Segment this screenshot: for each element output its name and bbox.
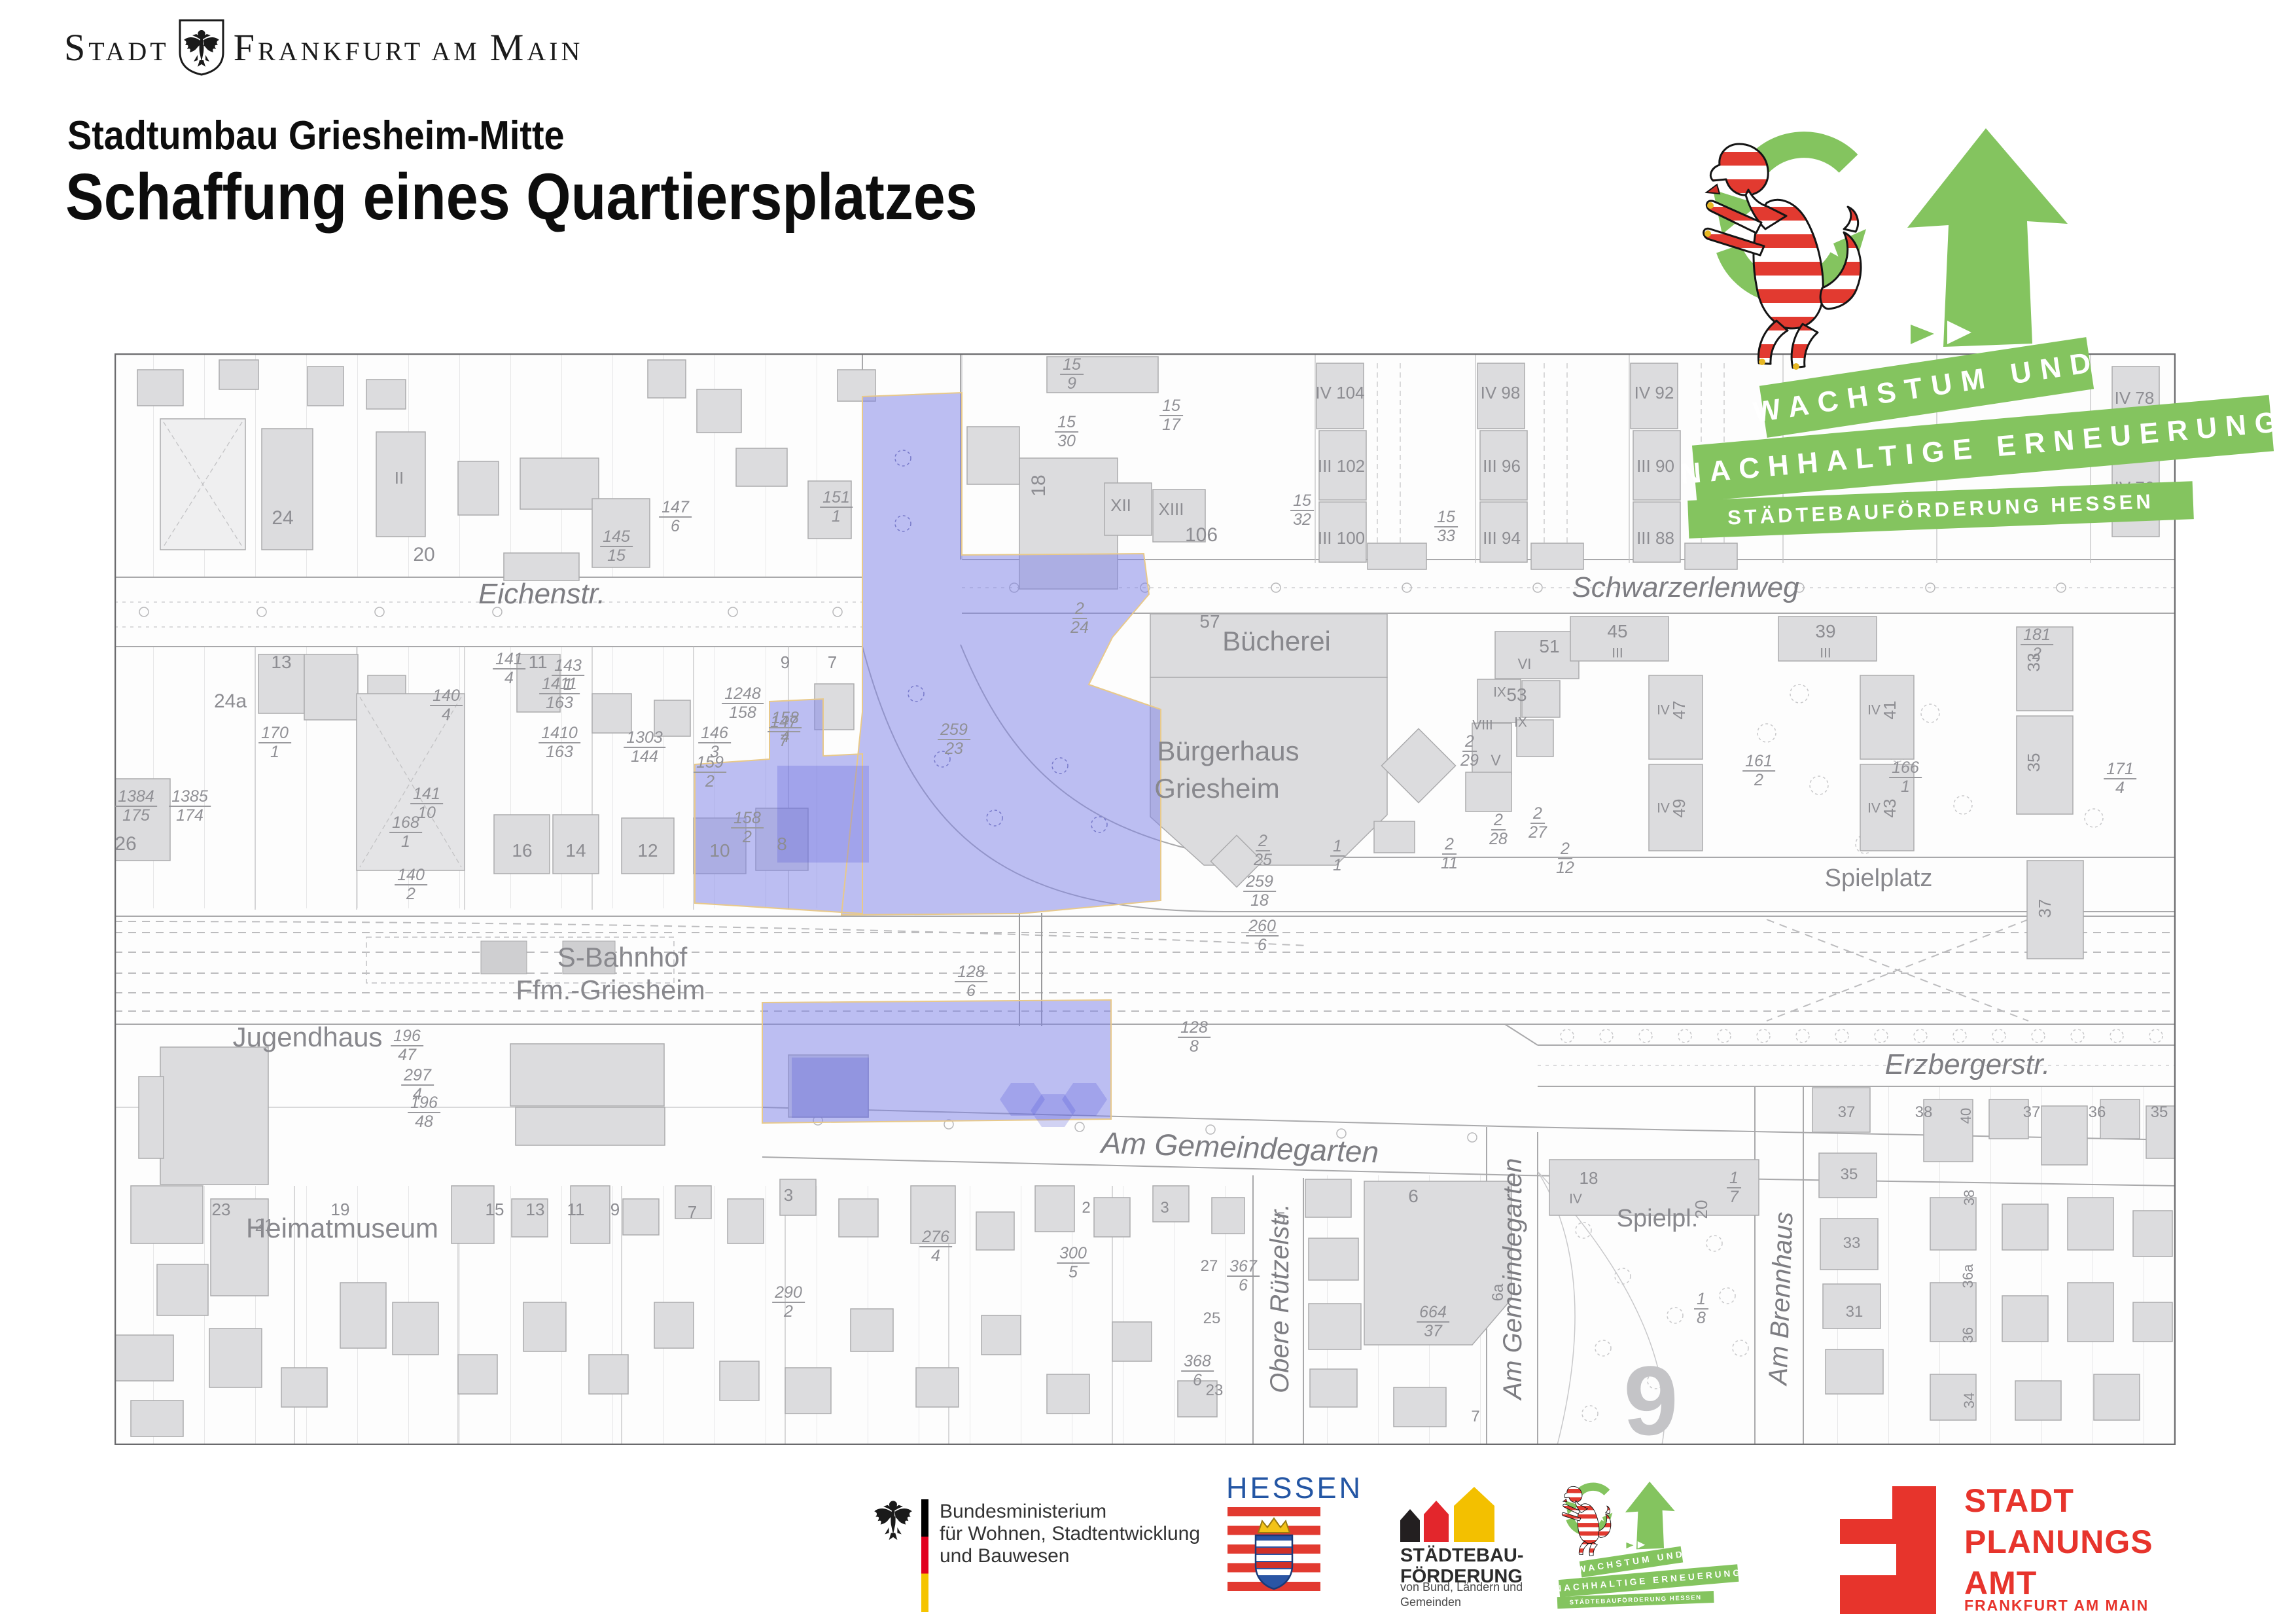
map-label: 53: [1506, 686, 1527, 704]
staedtebaufoerderung-logo-subtext: von Bund, Ländern und Gemeinden: [1400, 1580, 1523, 1611]
map-label: Bücherei: [1222, 628, 1331, 655]
stadtplanungsamt-mark-icon: [1840, 1486, 1936, 1614]
map-label: 49: [1670, 799, 1687, 818]
map-label: 1303144: [624, 730, 665, 765]
map-label: 159: [1060, 357, 1084, 392]
germany-flag-stripe: [921, 1499, 928, 1612]
bmwsb-logo-text: Bundesministerium für Wohnen, Stadtentwi…: [940, 1501, 1200, 1568]
map-label: 229: [1460, 734, 1479, 769]
map-label: Ffm.-Griesheim: [516, 976, 705, 1004]
map-label: 14515: [600, 529, 633, 564]
plan-page: STADT FRANKFURT AM MAIN Stadtumbau Gries…: [0, 0, 2296, 1623]
map-label: 14: [565, 842, 586, 860]
map-label: III 100: [1318, 529, 1365, 546]
map-label: 31: [1846, 1304, 1863, 1320]
map-label: 18: [1029, 474, 1049, 496]
map-label: 1414: [493, 651, 525, 687]
map-label: 12: [637, 842, 658, 860]
wordmark-part: M: [490, 26, 527, 69]
map-label: VIII: [1472, 719, 1493, 732]
city-logo: STADT FRANKFURT AM MAIN: [64, 18, 583, 76]
map-label: 25918: [1243, 874, 1276, 909]
map-label: IV: [1657, 704, 1670, 717]
map-label: 1517: [1159, 398, 1183, 433]
map-label: 1511: [820, 490, 853, 525]
map-label: 26: [115, 834, 136, 854]
map-label: IV 98: [1481, 384, 1521, 401]
map-label: IV 92: [1634, 384, 1674, 401]
city-logo-wordmark-right: FRANKFURT AM MAIN: [234, 26, 584, 69]
map-label: Obere Rützelstr.: [1267, 1204, 1293, 1393]
map-label: 9: [1623, 1351, 1678, 1450]
wordmark-part: S: [64, 26, 88, 69]
map-label: 10: [709, 842, 730, 860]
map-label: 36: [1961, 1327, 1975, 1343]
map-label: 27: [1201, 1258, 1218, 1274]
map-label: 1582: [731, 810, 764, 846]
page-subtitle: Stadtumbau Griesheim-Mitte: [67, 113, 565, 159]
map-label: 7: [688, 1204, 697, 1221]
hessen-lion-icon: [1688, 124, 1865, 380]
map-label: 2902: [772, 1285, 805, 1320]
map-label: 1661: [1889, 760, 1922, 795]
map-label: 1812: [2021, 627, 2053, 662]
map-label: 25923: [938, 722, 970, 757]
map-label: 36: [2089, 1105, 2106, 1120]
map-label: Spielplatz: [1825, 866, 1933, 891]
map-label: IV: [1867, 802, 1881, 815]
map-label: 36a: [1961, 1264, 1975, 1289]
page-title: Schaffung eines Quartiersplatzes: [65, 160, 978, 235]
map-label: 1476: [659, 499, 692, 535]
map-label: 1384175: [115, 789, 157, 824]
map-label: 1530: [1055, 414, 1078, 450]
map-label: Griesheim: [1154, 775, 1279, 802]
map-label: 9: [781, 654, 790, 671]
map-label: 19647: [391, 1028, 423, 1063]
map-label: 1533: [1434, 509, 1458, 544]
map-label: 11: [567, 1201, 585, 1218]
map-label: V: [1491, 753, 1500, 768]
map-label: 24a: [214, 692, 247, 711]
map-label: 15: [486, 1201, 504, 1218]
wachstum-badge-small: WACHSTUM UND NACHHALTIGE ERNEUERUNG STÄD…: [1557, 1480, 1740, 1610]
map-label: 37: [2023, 1105, 2041, 1120]
map-label: Am Gemeindegarten: [1500, 1158, 1526, 1399]
map-label: 2: [1082, 1200, 1090, 1216]
map-label: 13: [526, 1201, 545, 1218]
map-label: Schwarzerlenweg: [1572, 573, 1799, 602]
map-label: III 88: [1636, 529, 1674, 546]
map-label: 18: [1694, 1291, 1708, 1327]
map-label: 1681: [389, 815, 422, 850]
map-label: 19: [331, 1201, 350, 1218]
map-label: IX: [1493, 686, 1506, 700]
map-label: IV: [1867, 704, 1881, 717]
map-label: 1612: [1742, 753, 1775, 789]
map-label: III: [1820, 647, 1831, 660]
map-label: III 102: [1318, 457, 1365, 474]
map-label: 37: [2036, 899, 2053, 918]
map-label: 35: [2025, 753, 2042, 772]
map-label: 34: [1962, 1393, 1977, 1408]
map-label: 1592: [694, 755, 726, 790]
map-label: 212: [1556, 841, 1574, 876]
map-label: Jugendhaus: [233, 1024, 383, 1051]
map-label: 9: [610, 1201, 620, 1218]
frankfurt-eagle-shield-icon: [177, 18, 226, 76]
map-label: 16: [512, 842, 532, 860]
map-label: 23: [212, 1201, 231, 1218]
map-label: 21: [255, 1217, 274, 1234]
map-label: IV 104: [1315, 384, 1364, 401]
map-label: XIII: [1158, 501, 1184, 518]
map-label: 1248158: [722, 686, 764, 721]
map-label: II: [395, 469, 404, 486]
map-label: Erzbergerstr.: [1885, 1050, 2051, 1079]
staedtebaufoerderung-houses-icon: [1400, 1487, 1498, 1542]
map-label: IV: [1657, 802, 1670, 815]
map-label: IX: [1514, 716, 1527, 730]
map-label: 6: [1408, 1187, 1419, 1205]
wordmark-part: TADT: [88, 37, 169, 66]
map-label: III 96: [1483, 457, 1521, 474]
map-label: 38: [1962, 1190, 1977, 1205]
map-label: 2764: [919, 1229, 952, 1264]
map-label: 47: [1670, 701, 1687, 720]
city-logo-wordmark-left: STADT: [64, 26, 169, 69]
map-label: 1385174: [169, 789, 211, 824]
map-label: Bürgerhaus: [1157, 738, 1299, 765]
map-label: Am Brennhaus: [1765, 1211, 1797, 1385]
map-label: 18: [1580, 1169, 1598, 1186]
map-label: 8: [777, 835, 787, 853]
map-label: 106: [1185, 526, 1218, 545]
map-label: Eichenstr.: [478, 580, 605, 609]
map-label: III 94: [1483, 529, 1521, 546]
hessen-coat-of-arms-icon: [1253, 1516, 1295, 1590]
map-label: 24: [272, 508, 293, 528]
map-label: 37: [1838, 1105, 1856, 1120]
map-label: III 90: [1636, 457, 1674, 474]
map-label: 3005: [1057, 1245, 1089, 1281]
map-label: 33: [1843, 1236, 1861, 1251]
map-label: 7: [828, 654, 837, 671]
map-label: 3686: [1181, 1353, 1214, 1389]
map-label: 225: [1254, 833, 1272, 868]
map-label: 1286: [955, 964, 987, 999]
map-label: 1701: [258, 725, 291, 760]
map-label: Am Gemeindegarten: [1101, 1128, 1379, 1168]
map-label: 41: [1881, 701, 1898, 720]
map-label: 1402: [395, 867, 427, 902]
map-label: 57: [1199, 613, 1220, 631]
map-label: 1404: [430, 688, 463, 723]
stadtplanungsamt-logo-subtext: FRANKFURT AM MAIN: [1964, 1597, 2149, 1614]
map-label: 11: [1330, 838, 1345, 874]
map-label: 66437: [1417, 1304, 1449, 1340]
wachstum-badge: WACHSTUM UND NACHHALTIGE ERNEUERUNG STÄD…: [1688, 124, 2277, 543]
map-label: 3: [784, 1186, 793, 1204]
map-label: 211: [1441, 836, 1458, 872]
map-label: 228: [1489, 812, 1508, 847]
map-label: 45: [1607, 622, 1627, 641]
map-label: 11: [528, 653, 547, 671]
map-label: 1288: [1178, 1020, 1210, 1055]
map-label: 1584: [769, 710, 802, 745]
map-label: 227: [1528, 806, 1547, 841]
map-label: 20: [413, 545, 434, 565]
map-label: 38: [1915, 1105, 1933, 1120]
map-label: 1532: [1290, 493, 1314, 528]
map-label: 3: [1160, 1200, 1169, 1216]
wordmark-part: RANKFURT: [258, 37, 431, 66]
map-label: 20: [1693, 1200, 1710, 1219]
map-label: 1410163: [539, 725, 580, 760]
wordmark-part: F: [234, 26, 258, 69]
map-label: 40: [1959, 1108, 1973, 1124]
map-label: IV: [1569, 1192, 1582, 1206]
map-label: 51: [1539, 637, 1559, 656]
map-label: S-Bahnhof: [557, 944, 687, 971]
map-label: 1411163: [539, 676, 580, 711]
map-label: 7: [1471, 1409, 1479, 1425]
map-label: Spielpl.: [1617, 1206, 1699, 1231]
map-label: 1714: [2104, 761, 2136, 796]
map-label: 43: [1881, 799, 1898, 818]
map-label: 5: [1277, 1211, 1285, 1226]
map-label: 35: [1841, 1167, 1858, 1183]
map-label: 39: [1815, 622, 1835, 641]
map-label: 25: [1203, 1311, 1221, 1327]
stadtplanungsamt-logo-text: STADT PLANUNGS AMT: [1964, 1480, 2153, 1604]
map-label: 2974: [401, 1067, 434, 1103]
map-label: III: [1612, 647, 1623, 660]
map-label: 6a: [1491, 1284, 1506, 1302]
map-label: 35: [2151, 1105, 2168, 1120]
hessen-wordmark: HESSEN: [1226, 1471, 1363, 1505]
map-label: VI: [1518, 657, 1532, 671]
map-label: 3676: [1227, 1258, 1260, 1294]
map-label: 2606: [1246, 918, 1279, 954]
bundesadler-icon: [872, 1493, 914, 1543]
map-label: XII: [1110, 497, 1131, 514]
wordmark-part: AM: [431, 37, 489, 66]
map-label: 13: [271, 653, 291, 671]
map-label: 224: [1070, 601, 1089, 636]
wordmark-part: AIN: [527, 37, 583, 66]
hessen-lion-icon: [1557, 1480, 1612, 1560]
map-label: 17: [1727, 1170, 1741, 1205]
